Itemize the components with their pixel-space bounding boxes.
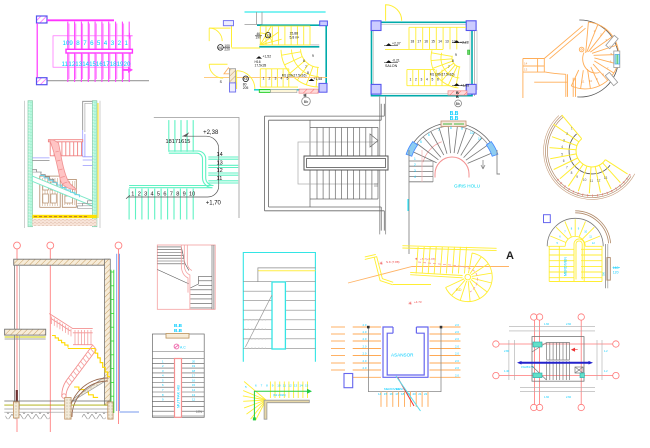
svg-text:7: 7	[566, 166, 568, 170]
svg-text:2.0: 2.0	[455, 359, 459, 363]
svg-text:2.0: 2.0	[363, 323, 367, 327]
svg-text:205: 205	[243, 86, 249, 90]
svg-text:2: 2	[138, 191, 141, 197]
svg-text:10: 10	[470, 131, 474, 135]
svg-text:SK: SK	[602, 272, 606, 276]
svg-text:6: 6	[563, 159, 565, 163]
svg-text:2.0: 2.0	[363, 330, 367, 334]
svg-text:13: 13	[266, 34, 270, 38]
svg-text:14: 14	[192, 388, 196, 392]
svg-text:4: 4	[426, 78, 428, 82]
svg-text:22: 22	[424, 392, 428, 396]
svg-text:Bb: Bb	[456, 102, 460, 106]
svg-text:11: 11	[478, 137, 482, 141]
svg-text:✳: ✳	[379, 261, 383, 267]
svg-text:2.0: 2.0	[363, 352, 367, 356]
svg-text:1.2: 1.2	[604, 349, 608, 353]
svg-text:B: B	[456, 95, 459, 99]
svg-text:+2,38: +2,38	[203, 130, 219, 136]
svg-text:2: 2	[415, 78, 417, 82]
svg-text:K6: K6	[244, 77, 248, 81]
svg-text:14: 14	[299, 384, 303, 388]
svg-text:K6: K6	[218, 46, 222, 50]
svg-text:4: 4	[414, 175, 416, 179]
svg-text:15: 15	[192, 383, 196, 387]
svg-text:16: 16	[390, 392, 394, 396]
svg-text:120: 120	[613, 271, 619, 275]
svg-text:9: 9	[455, 53, 457, 57]
svg-text:8: 8	[76, 40, 80, 47]
svg-text:15: 15	[305, 384, 309, 388]
svg-text:15: 15	[431, 40, 435, 44]
svg-text:3: 3	[111, 40, 115, 47]
svg-text:3: 3	[563, 138, 565, 142]
svg-text:4: 4	[561, 145, 563, 149]
svg-text:9: 9	[183, 191, 186, 197]
svg-text:1.2: 1.2	[604, 369, 608, 373]
svg-text:13: 13	[192, 393, 196, 397]
svg-text:13: 13	[217, 161, 223, 167]
svg-text:4: 4	[104, 40, 108, 47]
svg-text:5: 5	[561, 152, 563, 156]
svg-text:2.0: 2.0	[455, 352, 459, 356]
svg-text:2.0: 2.0	[455, 374, 459, 378]
svg-text:18: 18	[401, 392, 405, 396]
svg-text:1: 1	[131, 191, 134, 197]
svg-text:16: 16	[192, 379, 196, 383]
svg-text:1: 1	[263, 77, 265, 81]
svg-text:10: 10	[189, 191, 195, 197]
svg-text:10: 10	[589, 79, 593, 83]
svg-text:5: 5	[157, 191, 160, 197]
svg-text:GiRiS HOLU: GiRiS HOLU	[454, 184, 480, 189]
svg-text:A.C: A.C	[180, 346, 186, 350]
svg-text:5,8 m²: 5,8 m²	[290, 35, 300, 39]
svg-text:21: 21	[418, 392, 422, 396]
svg-text:160: 160	[613, 266, 619, 270]
svg-text:◄: ◄	[414, 256, 418, 261]
svg-text:12: 12	[217, 168, 223, 174]
svg-text:ASANSOR: ASANSOR	[391, 353, 414, 358]
svg-text:13: 13	[524, 68, 528, 72]
svg-text:MUTFAK HB: MUTFAK HB	[176, 385, 181, 408]
svg-text:2: 2	[566, 132, 568, 136]
svg-text:-0,21: -0,21	[392, 59, 400, 63]
svg-text:+5.7(+5.88): +5.7(+5.88)	[420, 257, 436, 261]
svg-text:1.60: 1.60	[544, 322, 550, 326]
svg-text:6: 6	[90, 40, 94, 47]
svg-text:2.0: 2.0	[455, 330, 459, 334]
svg-text:17N: 17N	[196, 410, 203, 414]
svg-text:+1,70: +1,70	[206, 200, 222, 206]
svg-text:6: 6	[303, 59, 305, 63]
svg-text:12: 12	[192, 398, 196, 402]
svg-text:3: 3	[144, 191, 147, 197]
svg-text:14: 14	[378, 392, 382, 396]
svg-text:2.0: 2.0	[363, 337, 367, 341]
svg-text:2.0: 2.0	[455, 337, 459, 341]
svg-text:(62 2016): (62 2016)	[273, 393, 286, 397]
svg-text:9: 9	[461, 127, 463, 131]
svg-text:13: 13	[445, 40, 449, 44]
svg-text:3: 3	[421, 78, 423, 82]
svg-text:A: A	[506, 250, 514, 262]
svg-text:7: 7	[83, 40, 87, 47]
svg-text:17: 17	[192, 374, 196, 378]
svg-text:2.80: 2.80	[504, 349, 510, 353]
svg-text:8: 8	[571, 171, 573, 175]
svg-text:B.B: B.B	[174, 328, 183, 333]
svg-text:2.0: 2.0	[455, 366, 459, 370]
svg-text:7: 7	[305, 65, 307, 69]
svg-text:9: 9	[312, 54, 314, 58]
svg-text:17: 17	[395, 392, 399, 396]
svg-text:14: 14	[217, 152, 223, 158]
svg-text:11: 11	[217, 176, 223, 182]
svg-text:+1,58: +1,58	[461, 83, 470, 87]
svg-text:13: 13	[604, 176, 608, 180]
svg-text:+1,52: +1,52	[263, 55, 272, 59]
svg-text:5: 5	[420, 140, 422, 144]
svg-text:20: 20	[124, 61, 131, 68]
svg-text:18: 18	[166, 139, 172, 145]
svg-text:18: 18	[192, 369, 196, 373]
svg-text:MERDIVEN: MERDIVEN	[564, 257, 568, 276]
svg-text:2.0: 2.0	[363, 366, 367, 370]
svg-text:10: 10	[277, 384, 281, 388]
svg-text:12: 12	[288, 384, 292, 388]
svg-text:4: 4	[151, 191, 154, 197]
svg-text:6: 6	[428, 133, 430, 137]
svg-text:1: 1	[414, 157, 416, 161]
svg-text:BD: BD	[456, 287, 462, 292]
svg-text:8: 8	[176, 191, 179, 197]
svg-text:20: 20	[413, 392, 417, 396]
svg-text:10: 10	[583, 178, 587, 182]
svg-text:8: 8	[450, 126, 452, 130]
svg-text:1: 1	[125, 40, 129, 47]
svg-text:1: 1	[410, 78, 412, 82]
svg-text:+2,38: +2,38	[460, 40, 469, 44]
svg-text:220: 220	[224, 47, 230, 51]
svg-text:6: 6	[163, 191, 166, 197]
svg-text:14: 14	[438, 40, 442, 44]
svg-text:2: 2	[269, 77, 271, 81]
svg-text:2.0: 2.0	[363, 359, 367, 363]
svg-text:9: 9	[69, 40, 73, 47]
svg-text:9: 9	[576, 175, 578, 179]
svg-text:8: 8	[452, 59, 454, 63]
svg-text:2.0: 2.0	[363, 345, 367, 349]
svg-text:3: 3	[275, 77, 277, 81]
svg-text:7: 7	[448, 65, 450, 69]
svg-text:2.0: 2.0	[455, 323, 459, 327]
svg-text:8: 8	[307, 71, 309, 75]
svg-text:20: 20	[192, 359, 196, 363]
svg-text:2: 2	[414, 163, 416, 167]
svg-text:15: 15	[384, 392, 388, 396]
svg-text:+2,37: +2,37	[392, 42, 401, 46]
svg-text:S.K (7.88): S.K (7.88)	[386, 260, 400, 264]
svg-text:M1 (28x17.5x16): M1 (28x17.5x16)	[282, 74, 307, 78]
svg-text:3: 3	[414, 169, 416, 173]
svg-text:2.0: 2.0	[455, 345, 459, 349]
svg-text:7: 7	[438, 128, 440, 132]
svg-text:19: 19	[192, 364, 196, 368]
svg-text:1.60: 1.60	[544, 395, 550, 399]
svg-text:✳: ✳	[408, 301, 412, 307]
svg-text:13: 13	[294, 384, 298, 388]
svg-text:18: 18	[411, 40, 415, 44]
svg-text:7: 7	[170, 191, 173, 197]
svg-text:5: 5	[97, 40, 101, 47]
svg-text:5: 5	[432, 78, 434, 82]
svg-text:1: 1	[571, 127, 573, 131]
svg-text:2.60: 2.60	[566, 322, 572, 326]
svg-text:SALON: SALON	[385, 64, 398, 68]
svg-text:14: 14	[524, 62, 528, 66]
svg-text:+1,58: +1,58	[314, 77, 323, 81]
svg-text:11: 11	[590, 179, 594, 183]
svg-text:2.60: 2.60	[566, 395, 572, 399]
svg-text:12: 12	[597, 178, 601, 182]
svg-text:+4.73: +4.73	[414, 300, 422, 304]
svg-text:2: 2	[118, 40, 122, 47]
svg-text:6: 6	[437, 78, 439, 82]
svg-text:M1 (28x17.5x16): M1 (28x17.5x16)	[430, 73, 455, 77]
svg-text:17: 17	[417, 40, 421, 44]
svg-text:Bb: Bb	[304, 100, 308, 104]
svg-text:11: 11	[581, 79, 584, 83]
svg-text:15x28/17.5: 15x28/17.5	[521, 365, 534, 369]
svg-text:16: 16	[424, 40, 428, 44]
svg-text:17,5x28: 17,5x28	[255, 64, 267, 68]
svg-text:11: 11	[283, 384, 286, 388]
svg-text:1.40: 1.40	[504, 369, 510, 373]
svg-text:15: 15	[184, 139, 190, 145]
